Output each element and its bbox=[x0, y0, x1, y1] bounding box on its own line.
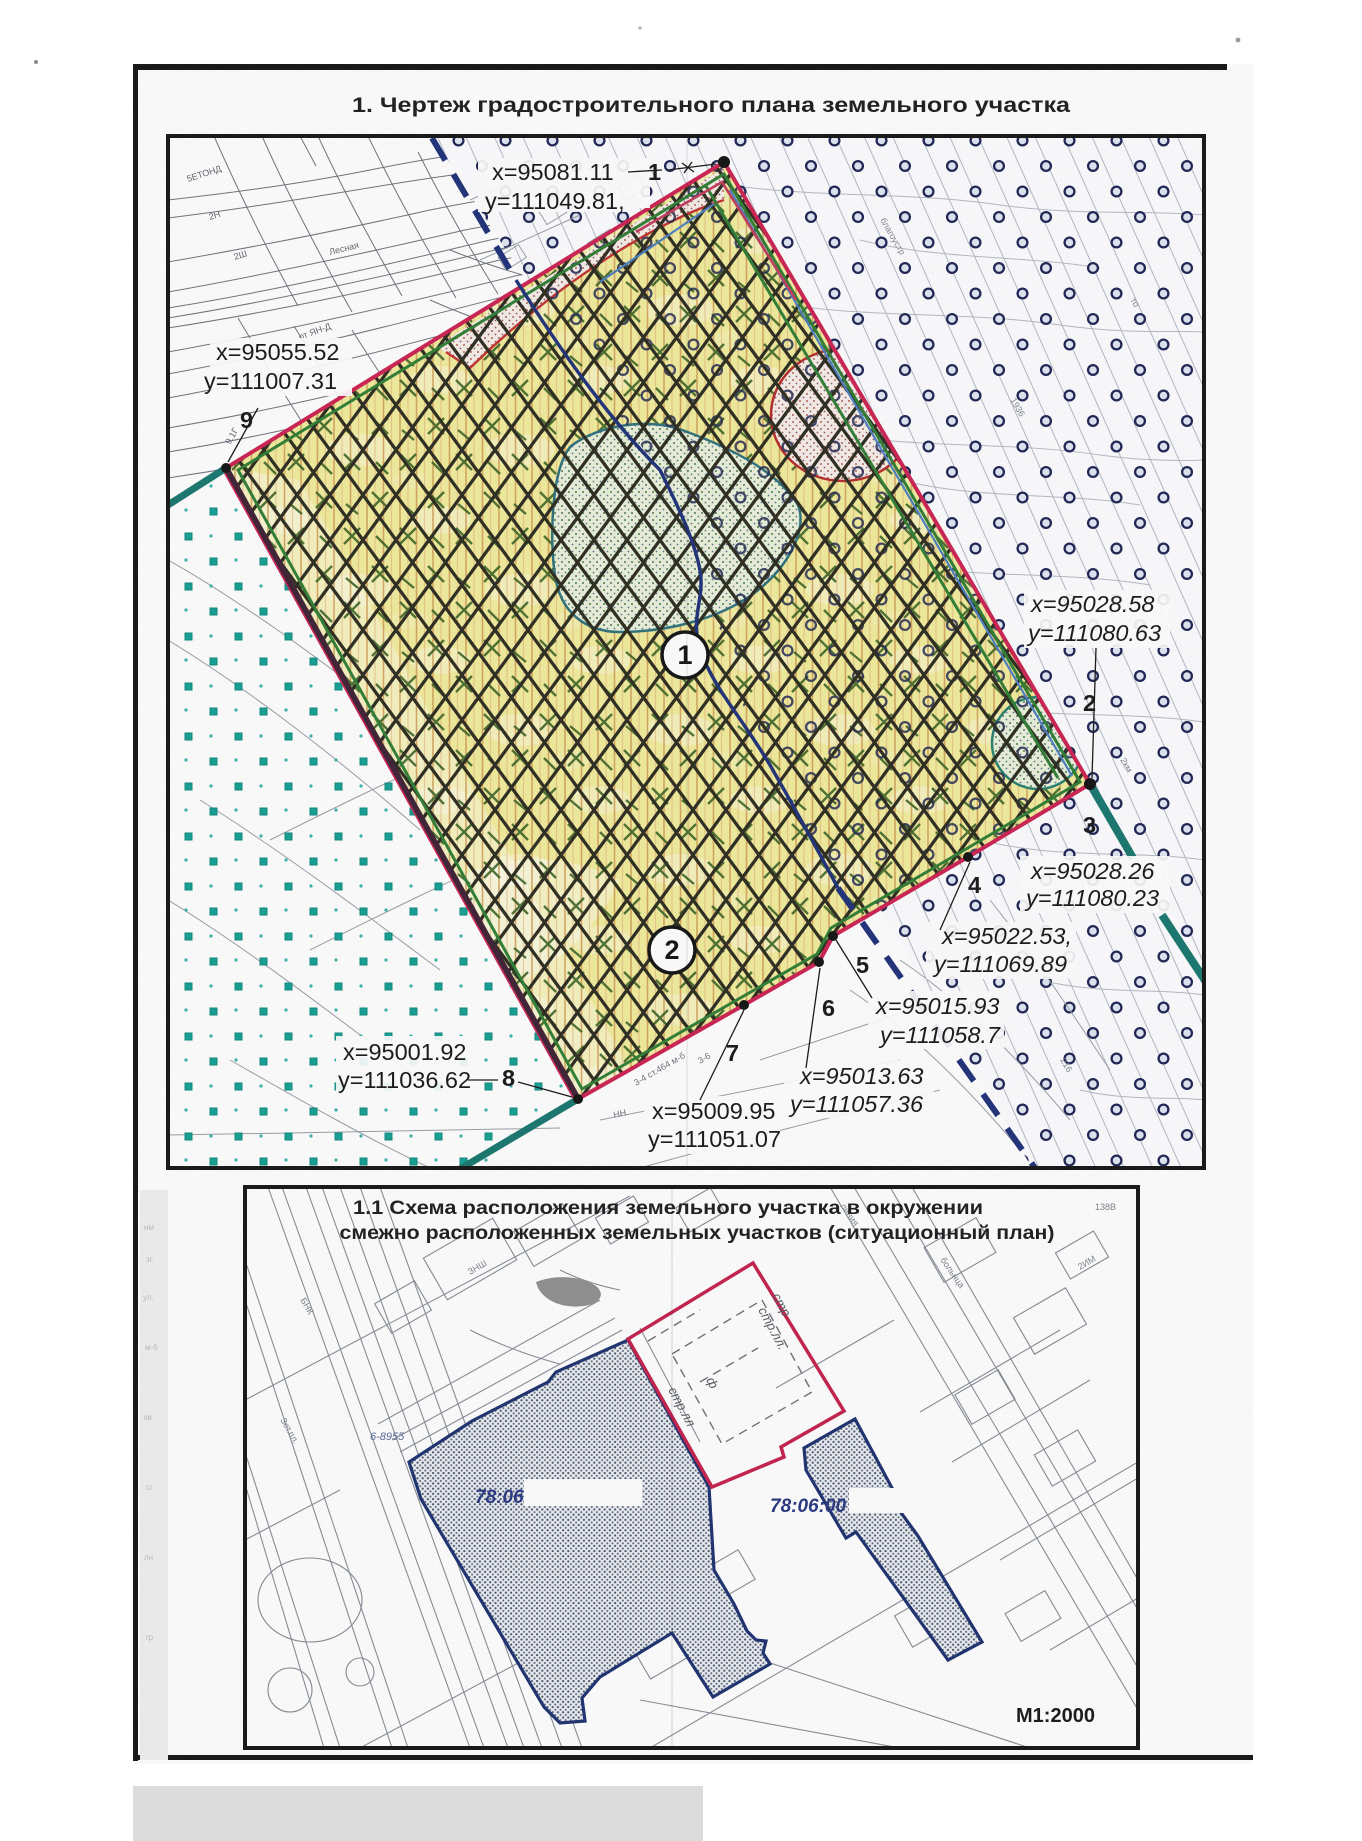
svg-text:м-б: м-б bbox=[145, 1343, 158, 1352]
svg-text:тр: тр bbox=[145, 1633, 154, 1642]
svg-text:лн: лн bbox=[144, 1553, 153, 1562]
svg-text:нм: нм bbox=[144, 1223, 154, 1232]
svg-text:зг.: зг. bbox=[146, 1255, 154, 1264]
svg-text:сг: сг bbox=[146, 1483, 153, 1492]
svg-text:ул.: ул. bbox=[143, 1293, 154, 1302]
svg-text:кв: кв bbox=[144, 1413, 152, 1422]
